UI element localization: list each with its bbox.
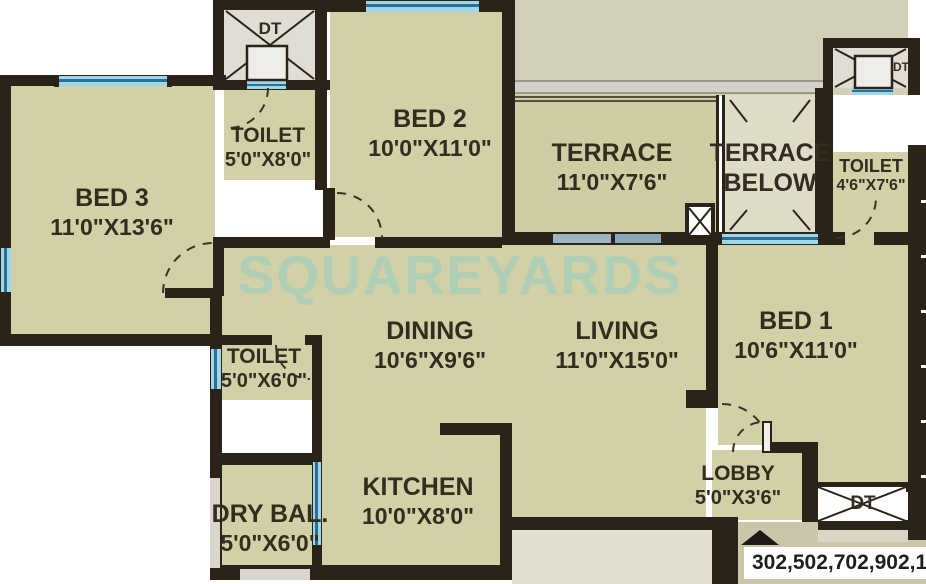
room-label-bed2: BED 2 10'0"X11'0" (368, 105, 492, 162)
room-name: TOILET (221, 345, 307, 370)
room-dims: 5'0"X6'0" (212, 530, 329, 557)
room-name: TERRACE (552, 139, 673, 169)
floor-plan: SQUAREYARDS BED 3 11'0"X13'6" TOILET 5'0… (0, 0, 926, 584)
room-label-terrace-below: TERRACE BELOW (710, 139, 831, 198)
room-dims: 5'0"X6'0" (221, 370, 307, 394)
window-toilet-mid-left (211, 349, 221, 389)
room-dims: 11'0"X15'0" (555, 347, 679, 374)
room-name: LOBBY (695, 462, 781, 487)
room-name-line2: BELOW (710, 169, 831, 199)
room-label-toilet-top: TOILET 5'0"X8'0" (225, 124, 311, 172)
room-name: DINING (374, 317, 486, 347)
room-dims: 10'0"X8'0" (362, 503, 474, 530)
room-dims: 5'0"X8'0" (225, 149, 311, 173)
room-name: BED 3 (50, 184, 174, 214)
window-bed2-top (361, 0, 484, 12)
room-dims: 10'6"X9'6" (374, 347, 486, 374)
room-name: TOILET (836, 156, 905, 177)
room-label-lobby: LOBBY 5'0"X3'6" (695, 462, 781, 510)
door-leaves (763, 422, 771, 452)
dt-top-label: DT (259, 19, 282, 39)
room-label-terrace: TERRACE 11'0"X7'6" (552, 139, 673, 196)
room-name: TOILET (225, 124, 311, 149)
room-label-bed3: BED 3 11'0"X13'6" (50, 184, 174, 241)
room-dims: 4'6"X7'6" (836, 177, 905, 196)
room-label-dry-balcony: DRY BAL. 5'0"X6'0" (212, 500, 329, 557)
room-label-toilet-mid: TOILET 5'0"X6'0" (221, 345, 307, 393)
column-box (687, 205, 713, 237)
unit-numbers: 302,502,702,902,1102 (744, 551, 926, 575)
room-name: BED 2 (368, 105, 492, 135)
room-dims: 11'0"X13'6" (50, 214, 174, 241)
room-label-living: LIVING 11'0"X15'0" (555, 317, 679, 374)
window-dt-top (247, 81, 286, 89)
window-bed3-left (1, 248, 11, 292)
window-terrace-below-bottom (722, 234, 818, 244)
room-dims: 10'6"X11'0" (734, 337, 858, 364)
room-label-kitchen: KITCHEN 10'0"X8'0" (362, 473, 474, 530)
room-name: KITCHEN (362, 473, 474, 503)
dt-right-label: DT (893, 60, 909, 74)
dt-bottom-label: DT (850, 493, 875, 515)
room-label-toilet-right: TOILET 4'6"X7'6" (836, 156, 905, 196)
room-dims: 11'0"X7'6" (552, 169, 673, 196)
unit-numbers-box: 302,502,702,902,1102 (744, 547, 926, 579)
room-label-bed1: BED 1 10'6"X11'0" (734, 307, 858, 364)
room-dims: 10'0"X11'0" (368, 135, 492, 162)
room-label-dining: DINING 10'6"X9'6" (374, 317, 486, 374)
room-name: BED 1 (734, 307, 858, 337)
window-bed3-top (54, 75, 172, 87)
room-dims: 5'0"X3'6" (695, 487, 781, 511)
squareyards-watermark: SQUAREYARDS (238, 243, 683, 307)
room-name: LIVING (555, 317, 679, 347)
entry-arrow-icon (741, 530, 779, 545)
room-name: DRY BAL. (212, 500, 329, 530)
room-name: TERRACE (710, 139, 831, 169)
